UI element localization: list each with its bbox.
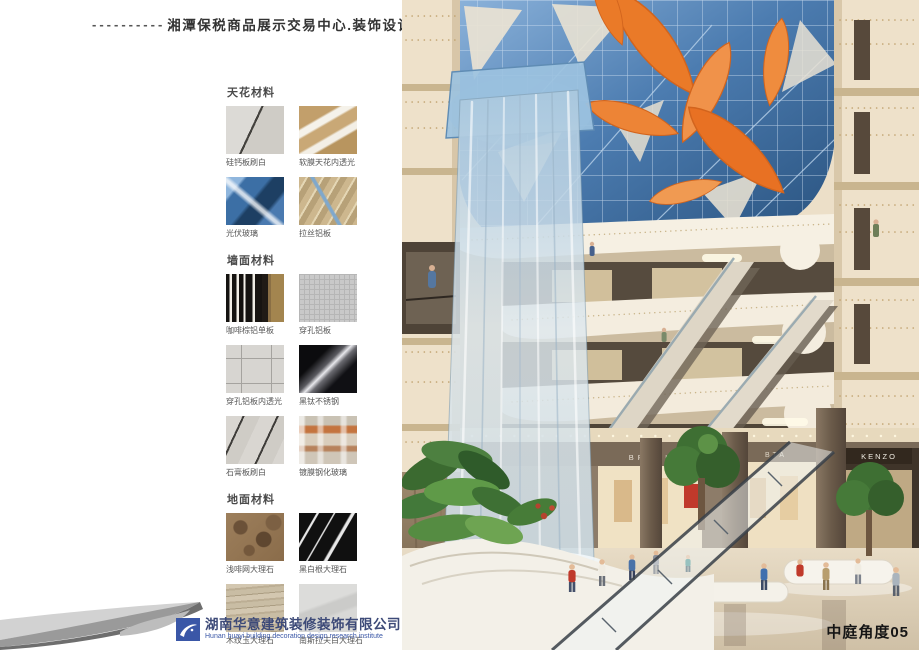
footer-swoosh-graphic bbox=[0, 598, 205, 650]
material-swatch bbox=[226, 513, 284, 561]
material-label: 穿孔铝板 bbox=[299, 325, 357, 336]
company-name-cn: 湖南华意建筑装修装饰有限公司 bbox=[205, 618, 401, 632]
material-swatch bbox=[226, 345, 284, 393]
material-item: 硅钙板刷白 bbox=[226, 106, 284, 168]
page-title: 湘潭保税商品展示交易中心.装饰设计 bbox=[167, 14, 412, 34]
company-block: 湖南华意建筑装修装饰有限公司 Hunan huayi building deco… bbox=[176, 618, 401, 641]
material-label: 石膏板刷白 bbox=[226, 467, 284, 478]
wall-materials-grid: 咖啡棕铝单板 穿孔铝板 穿孔铝板内透光 黑钛不锈钢 石膏板刷白 镀膜钢化玻璃 bbox=[226, 274, 396, 478]
material-label: 镀膜钢化玻璃 bbox=[299, 467, 357, 478]
material-label: 拉丝铝板 bbox=[299, 228, 357, 239]
material-swatch bbox=[299, 513, 357, 561]
balcony-person bbox=[873, 219, 878, 224]
company-names: 湖南华意建筑装修装饰有限公司 Hunan huayi building deco… bbox=[205, 618, 401, 640]
material-swatch bbox=[226, 416, 284, 464]
shop-sign-kenzo: KENZO bbox=[861, 452, 897, 461]
material-swatch bbox=[299, 274, 357, 322]
material-label: 光伏玻璃 bbox=[226, 228, 284, 239]
material-item: 浅啡网大理石 bbox=[226, 513, 284, 575]
material-swatch bbox=[299, 416, 357, 464]
material-item: 穿孔铝板 bbox=[299, 274, 357, 336]
material-label: 黑白根大理石 bbox=[299, 564, 357, 575]
view-caption: 中庭角度05 bbox=[826, 621, 909, 642]
material-swatch bbox=[299, 106, 357, 154]
section-heading-floor: 地面材料 bbox=[227, 491, 396, 507]
material-swatch bbox=[299, 345, 357, 393]
material-label: 咖啡棕铝单板 bbox=[226, 325, 284, 336]
material-item: 穿孔铝板内透光 bbox=[226, 345, 284, 407]
material-item: 石膏板刷白 bbox=[226, 416, 284, 478]
material-item: 咖啡棕铝单板 bbox=[226, 274, 284, 336]
section-heading-ceiling: 天花材料 bbox=[227, 84, 396, 100]
atrium-scene: BRUTI bbox=[402, 0, 919, 650]
material-item: 拉丝铝板 bbox=[299, 177, 357, 239]
material-label: 软膜天花内透光 bbox=[299, 157, 357, 168]
material-label: 浅啡网大理石 bbox=[226, 564, 284, 575]
walkway-person bbox=[429, 265, 435, 271]
material-swatch bbox=[226, 177, 284, 225]
materials-legend: 天花材料 硅钙板刷白 软膜天花内透光 光伏玻璃 拉丝铝板 墙面材料 bbox=[226, 84, 396, 650]
material-label: 穿孔铝板内透光 bbox=[226, 396, 284, 407]
material-label: 硅钙板刷白 bbox=[226, 157, 284, 168]
material-swatch bbox=[299, 177, 357, 225]
atrium-rendering: BRUTI bbox=[402, 0, 919, 650]
material-item: 镀膜钢化玻璃 bbox=[299, 416, 357, 478]
material-item: 光伏玻璃 bbox=[226, 177, 284, 239]
material-item: 软膜天花内透光 bbox=[299, 106, 357, 168]
material-label: 黑钛不锈钢 bbox=[299, 396, 357, 407]
material-swatch bbox=[226, 106, 284, 154]
material-item: 黑白根大理石 bbox=[299, 513, 357, 575]
material-swatch bbox=[226, 274, 284, 322]
material-item: 黑钛不锈钢 bbox=[299, 345, 357, 407]
company-logo-icon bbox=[176, 618, 200, 641]
section-heading-wall: 墙面材料 bbox=[227, 252, 396, 268]
presentation-board: ---------- 湘潭保税商品展示交易中心.装饰设计 天花材料 硅钙板刷白 … bbox=[0, 0, 919, 650]
right-balcony-stack bbox=[834, 0, 919, 448]
ceiling-materials-grid: 硅钙板刷白 软膜天花内透光 光伏玻璃 拉丝铝板 bbox=[226, 106, 396, 239]
company-name-en: Hunan huayi building decoration design r… bbox=[205, 633, 401, 640]
lounge-bench bbox=[702, 582, 788, 602]
board-header: ---------- 湘潭保税商品展示交易中心.装饰设计 bbox=[92, 14, 413, 34]
title-dash-line: ---------- bbox=[92, 17, 165, 32]
